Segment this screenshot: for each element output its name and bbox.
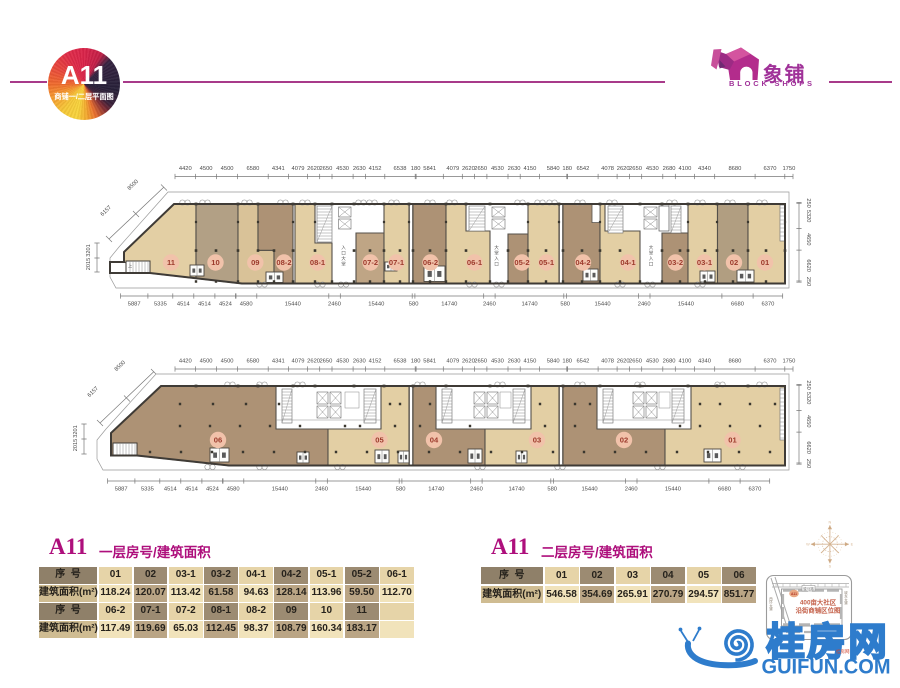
- svg-text:4650: 4650: [805, 415, 811, 427]
- svg-text:4524: 4524: [219, 302, 233, 308]
- svg-text:180: 180: [562, 166, 572, 172]
- svg-text:6370: 6370: [748, 487, 761, 493]
- svg-text:4524: 4524: [206, 487, 220, 493]
- svg-text:5320: 5320: [805, 210, 811, 222]
- svg-text:07-2: 07-2: [363, 258, 378, 267]
- svg-text:15440: 15440: [368, 302, 384, 308]
- svg-text:4420: 4420: [179, 359, 192, 365]
- svg-text:2650: 2650: [319, 359, 332, 365]
- svg-text:2460: 2460: [625, 487, 638, 493]
- svg-text:14740: 14740: [508, 487, 524, 493]
- svg-text:5887: 5887: [115, 487, 128, 493]
- svg-text:6620: 6620: [805, 259, 811, 271]
- svg-text:6370: 6370: [764, 359, 777, 365]
- svg-text:4500: 4500: [200, 359, 213, 365]
- svg-text:2460: 2460: [328, 302, 341, 308]
- svg-text:3201: 3201: [86, 244, 92, 256]
- svg-text:400亩大社区: 400亩大社区: [800, 598, 837, 607]
- svg-text:1750: 1750: [782, 166, 795, 172]
- svg-text:2620: 2620: [462, 359, 475, 365]
- svg-text:5320: 5320: [805, 392, 811, 404]
- svg-text:4150: 4150: [523, 166, 536, 172]
- svg-text:08-2: 08-2: [276, 258, 291, 267]
- svg-text:入: 入: [649, 256, 654, 261]
- svg-text:6370: 6370: [764, 166, 777, 172]
- svg-text:4341: 4341: [272, 359, 285, 365]
- svg-text:15440: 15440: [355, 487, 371, 493]
- svg-text:5841: 5841: [423, 166, 436, 172]
- svg-text:城东大道: 城东大道: [843, 590, 847, 605]
- svg-text:4078: 4078: [601, 359, 614, 365]
- svg-text:580: 580: [409, 302, 419, 308]
- svg-text:4079: 4079: [292, 166, 305, 172]
- svg-text:2630: 2630: [353, 359, 366, 365]
- svg-text:N: N: [829, 521, 832, 525]
- svg-text:5840: 5840: [547, 359, 560, 365]
- svg-text:250: 250: [805, 277, 811, 286]
- svg-text:10: 10: [211, 258, 219, 267]
- svg-text:09: 09: [251, 258, 259, 267]
- svg-text:2620: 2620: [307, 166, 320, 172]
- svg-text:4580: 4580: [227, 487, 240, 493]
- svg-text:4420: 4420: [179, 166, 192, 172]
- svg-text:2620: 2620: [462, 166, 475, 172]
- svg-text:580: 580: [396, 487, 406, 493]
- svg-text:2650: 2650: [474, 359, 487, 365]
- svg-text:4514: 4514: [177, 302, 191, 308]
- svg-text:4078: 4078: [601, 166, 614, 172]
- svg-text:5335: 5335: [154, 302, 167, 308]
- svg-text:05-2: 05-2: [514, 258, 529, 267]
- svg-text:6157: 6157: [87, 386, 100, 399]
- svg-text:2620: 2620: [617, 166, 630, 172]
- svg-text:西环大道: 西环大道: [768, 597, 772, 611]
- svg-text:4500: 4500: [221, 166, 234, 172]
- svg-text:580: 580: [547, 487, 557, 493]
- svg-text:上: 上: [128, 262, 132, 268]
- svg-text:05-1: 05-1: [539, 258, 555, 267]
- svg-text:2460: 2460: [470, 487, 483, 493]
- svg-text:15440: 15440: [665, 487, 681, 493]
- svg-text:2630: 2630: [508, 359, 521, 365]
- svg-text:06: 06: [214, 436, 222, 445]
- svg-text:4150: 4150: [523, 359, 536, 365]
- svg-text:4340: 4340: [698, 359, 711, 365]
- svg-text:2460: 2460: [483, 302, 496, 308]
- svg-text:6620: 6620: [805, 441, 811, 453]
- svg-text:W: W: [806, 543, 810, 547]
- svg-text:4500: 4500: [221, 359, 234, 365]
- svg-text:4152: 4152: [369, 166, 382, 172]
- svg-text:01: 01: [728, 436, 737, 445]
- svg-text:2650: 2650: [319, 166, 332, 172]
- svg-text:6542: 6542: [576, 166, 589, 172]
- svg-text:2630: 2630: [508, 166, 521, 172]
- svg-text:A11: A11: [791, 592, 797, 596]
- svg-text:沿街商铺区位图: 沿街商铺区位图: [796, 606, 841, 615]
- svg-text:8680: 8680: [728, 359, 741, 365]
- svg-text:250: 250: [805, 459, 811, 468]
- svg-text:14740: 14740: [521, 302, 537, 308]
- svg-text:4500: 4500: [200, 166, 213, 172]
- svg-text:6538: 6538: [394, 359, 407, 365]
- svg-text:3201: 3201: [73, 425, 79, 437]
- svg-text:堂: 堂: [649, 250, 654, 256]
- svg-text:15440: 15440: [285, 302, 301, 308]
- svg-text:180: 180: [411, 359, 421, 365]
- svg-text:1750: 1750: [782, 359, 795, 365]
- svg-text:6680: 6680: [718, 487, 731, 493]
- svg-text:5335: 5335: [141, 487, 154, 493]
- svg-text:4079: 4079: [446, 166, 459, 172]
- svg-text:2460: 2460: [315, 487, 328, 493]
- svg-text:2650: 2650: [629, 359, 642, 365]
- svg-text:堂: 堂: [494, 250, 499, 256]
- svg-text:15440: 15440: [581, 487, 597, 493]
- svg-text:2650: 2650: [629, 166, 642, 172]
- svg-text:2015: 2015: [73, 439, 79, 451]
- svg-text:2620: 2620: [617, 359, 630, 365]
- svg-text:4341: 4341: [272, 166, 285, 172]
- svg-text:4100: 4100: [678, 166, 691, 172]
- svg-text:04-2: 04-2: [575, 258, 590, 267]
- svg-text:580: 580: [560, 302, 570, 308]
- svg-text:180: 180: [562, 359, 572, 365]
- svg-text:2460: 2460: [638, 302, 651, 308]
- svg-text:S: S: [829, 565, 832, 569]
- svg-text:4340: 4340: [698, 166, 711, 172]
- svg-text:4514: 4514: [198, 302, 212, 308]
- svg-text:01: 01: [761, 258, 770, 267]
- svg-text:4530: 4530: [336, 359, 349, 365]
- svg-text:6542: 6542: [576, 359, 589, 365]
- svg-text:堂: 堂: [341, 261, 346, 267]
- svg-text:11: 11: [167, 258, 176, 267]
- svg-text:15440: 15440: [594, 302, 610, 308]
- svg-text:4530: 4530: [646, 166, 659, 172]
- svg-text:06-2: 06-2: [423, 258, 438, 267]
- svg-text:180: 180: [411, 166, 421, 172]
- svg-text:5840: 5840: [547, 166, 560, 172]
- svg-text:8680: 8680: [728, 166, 741, 172]
- svg-text:03-2: 03-2: [668, 258, 683, 267]
- svg-text:4530: 4530: [646, 359, 659, 365]
- svg-text:250: 250: [805, 380, 811, 389]
- svg-text:02: 02: [730, 258, 738, 267]
- svg-text:5841: 5841: [423, 359, 436, 365]
- svg-text:4514: 4514: [185, 487, 199, 493]
- svg-text:4530: 4530: [491, 359, 504, 365]
- svg-text:03-1: 03-1: [697, 258, 713, 267]
- svg-text:GUIFUN.COM: GUIFUN.COM: [762, 655, 891, 679]
- svg-text:桂房网: 桂房网: [836, 648, 850, 655]
- svg-text:6580: 6580: [246, 359, 259, 365]
- svg-text:4079: 4079: [292, 359, 305, 365]
- svg-text:4152: 4152: [369, 359, 382, 365]
- svg-text:6680: 6680: [731, 302, 744, 308]
- svg-text:4100: 4100: [678, 359, 691, 365]
- svg-text:4079: 4079: [446, 359, 459, 365]
- svg-text:4530: 4530: [336, 166, 349, 172]
- svg-text:E: E: [851, 543, 854, 547]
- svg-text:入: 入: [494, 256, 499, 261]
- svg-text:250: 250: [805, 198, 811, 207]
- svg-text:8500: 8500: [114, 360, 127, 373]
- svg-text:15440: 15440: [678, 302, 694, 308]
- svg-text:6370: 6370: [761, 302, 774, 308]
- svg-text:08-1: 08-1: [310, 258, 326, 267]
- svg-text:4514: 4514: [164, 487, 178, 493]
- svg-text:6157: 6157: [100, 205, 113, 218]
- svg-text:5887: 5887: [128, 302, 141, 308]
- svg-text:06-1: 06-1: [467, 258, 483, 267]
- svg-text:05: 05: [375, 436, 384, 445]
- svg-text:6580: 6580: [246, 166, 259, 172]
- svg-text:4530: 4530: [491, 166, 504, 172]
- svg-text:2650: 2650: [474, 166, 487, 172]
- svg-text:骏马路: 骏马路: [803, 586, 814, 591]
- svg-text:2680: 2680: [663, 359, 676, 365]
- svg-text:14740: 14740: [428, 487, 444, 493]
- svg-text:入: 入: [341, 245, 346, 250]
- svg-text:14740: 14740: [441, 302, 457, 308]
- svg-text:07-1: 07-1: [389, 258, 405, 267]
- svg-text:2630: 2630: [353, 166, 366, 172]
- svg-text:03: 03: [533, 436, 541, 445]
- svg-text:6538: 6538: [394, 166, 407, 172]
- svg-text:15440: 15440: [272, 487, 288, 493]
- svg-text:8500: 8500: [127, 179, 140, 192]
- svg-text:02: 02: [620, 436, 628, 445]
- svg-text:4580: 4580: [240, 302, 253, 308]
- svg-text:2680: 2680: [663, 166, 676, 172]
- svg-text:2620: 2620: [307, 359, 320, 365]
- svg-text:2015: 2015: [86, 258, 92, 270]
- svg-text:04: 04: [430, 436, 439, 445]
- svg-text:4650: 4650: [805, 233, 811, 245]
- svg-text:04-1: 04-1: [620, 258, 636, 267]
